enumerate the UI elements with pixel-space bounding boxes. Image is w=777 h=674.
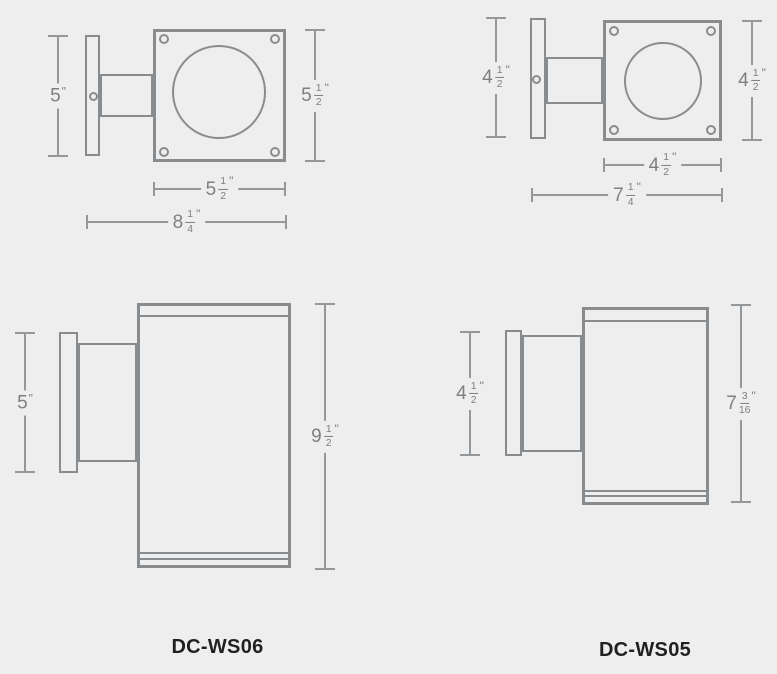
ws05-screw-hole [609,26,619,36]
ws06-top-mounting-arm [100,74,153,117]
ws06-screw-hole [270,147,280,157]
ws06-side-dim-overall-height: 912" [315,303,335,570]
dim-value: 5" [45,84,71,109]
ws05-top-mounting-arm [546,57,603,104]
ws05-side-top-trim-line [585,320,706,322]
ws06-side-mounting-arm [78,343,137,462]
dim-value: 412" [733,64,771,96]
ws06-side-bottom-trim-line [140,552,288,554]
ws06-screw-hole [159,147,169,157]
ws05-screw-hole [609,125,619,135]
ws06-screw-hole [270,34,280,44]
ws05-top-dim-backplate-height: 412" [486,17,506,138]
ws06-top-lens [172,45,266,139]
ws05-side-bottom-trim-line [585,495,706,497]
ws05-side-cylinder-body [582,307,709,505]
dim-value: 412" [644,149,682,181]
dim-value: 714" [608,179,646,211]
ws06-top-dim-backplate-height: 5" [48,35,68,157]
ws06-side-bottom-trim-line [140,558,288,560]
ws06-side-dim-backplate-height: 5" [15,332,35,473]
dim-value: 412" [477,61,515,93]
dim-value: 814" [168,206,206,238]
ws05-top-set-screw [532,75,541,84]
ws05-screw-hole [706,125,716,135]
dim-value: 5" [12,390,38,415]
ws05-side-dim-overall-height: 7316" [731,304,751,503]
ws05-top-lens [624,42,702,120]
ws05-top-dim-faceplate-width: 412" [603,158,722,172]
ws06-top-set-screw [89,92,98,101]
dim-value: 412" [451,377,489,409]
ws05-top-dim-faceplate-height: 412" [742,20,762,141]
ws05-side-mounting-arm [522,335,582,452]
dim-value: 7316" [721,387,761,419]
dim-value: 912" [306,420,344,452]
ws06-side-backplate [59,332,78,473]
dim-value: 512" [201,173,239,205]
ws06-top-dim-faceplate-height: 512" [305,29,325,162]
ws05-top-dim-overall-depth: 714" [531,188,723,202]
ws06-model-label: DC-WS06 [140,636,295,659]
ws05-side-backplate [505,330,522,456]
ws05-model-label: DC-WS05 [570,639,720,662]
ws06-screw-hole [159,34,169,44]
ws06-side-top-trim-line [140,315,288,317]
ws05-side-dim-backplate-height: 412" [460,331,480,456]
ws06-top-dim-faceplate-width: 512" [153,182,286,196]
dim-value: 512" [296,79,334,111]
ws05-screw-hole [706,26,716,36]
ws06-side-cylinder-body [137,303,291,568]
spec-sheet-canvas: 5" 512" 512" 814" [0,0,777,674]
ws05-side-bottom-trim-line [585,490,706,492]
ws06-top-dim-overall-depth: 814" [86,215,287,229]
